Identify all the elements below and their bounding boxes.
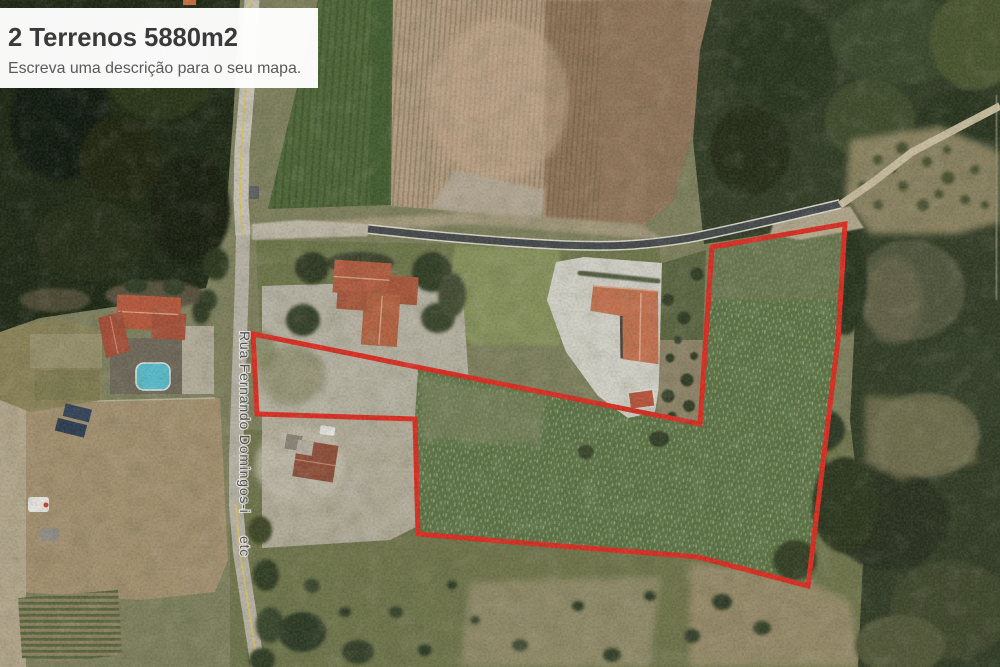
svg-text:2 Terrenos 5880m2: 2 Terrenos 5880m2: [8, 24, 238, 52]
svg-text:Escreva uma descrição para o s: Escreva uma descrição para o seu mapa.: [8, 60, 301, 77]
